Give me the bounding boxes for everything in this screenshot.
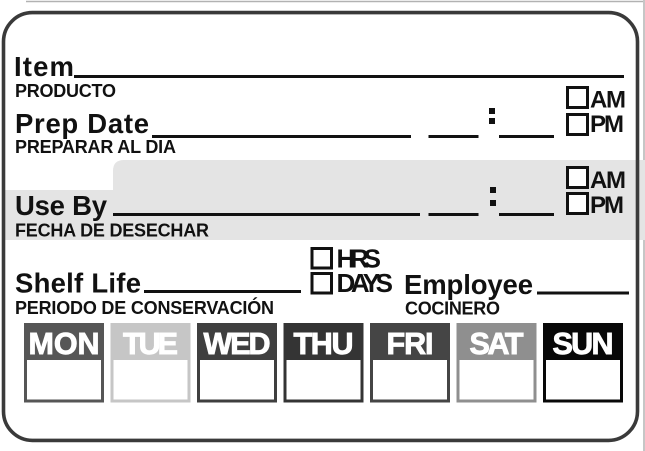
svg-text:Employee: Employee bbox=[404, 269, 533, 300]
svg-text:FRI: FRI bbox=[387, 327, 434, 361]
svg-text:DAYS: DAYS bbox=[337, 268, 394, 298]
svg-text:PRODUCTO: PRODUCTO bbox=[15, 81, 116, 101]
svg-text:TUE: TUE bbox=[123, 327, 178, 361]
svg-text:WED: WED bbox=[204, 327, 271, 361]
svg-text:PM: PM bbox=[590, 192, 624, 219]
svg-text:SUN: SUN bbox=[553, 327, 614, 361]
svg-text:PERIODO DE CONSERVACIÓN: PERIODO DE CONSERVACIÓN bbox=[15, 297, 274, 318]
svg-text:AM: AM bbox=[590, 87, 626, 114]
svg-text:FECHA DE DESECHAR: FECHA DE DESECHAR bbox=[15, 221, 209, 241]
svg-text:Shelf Life: Shelf Life bbox=[15, 268, 141, 299]
svg-text:PM: PM bbox=[590, 111, 624, 138]
svg-text:Prep Date: Prep Date bbox=[15, 108, 149, 139]
svg-text:SAT: SAT bbox=[470, 327, 524, 361]
svg-text:PREPARAR AL DIA: PREPARAR AL DIA bbox=[15, 137, 176, 157]
svg-text:MON: MON bbox=[29, 327, 100, 361]
svg-text:Item: Item bbox=[14, 51, 74, 82]
svg-text:AM: AM bbox=[590, 167, 626, 194]
svg-text:COCINERO: COCINERO bbox=[405, 299, 500, 319]
svg-text:THU: THU bbox=[294, 327, 354, 361]
svg-text:Use By: Use By bbox=[15, 190, 108, 221]
